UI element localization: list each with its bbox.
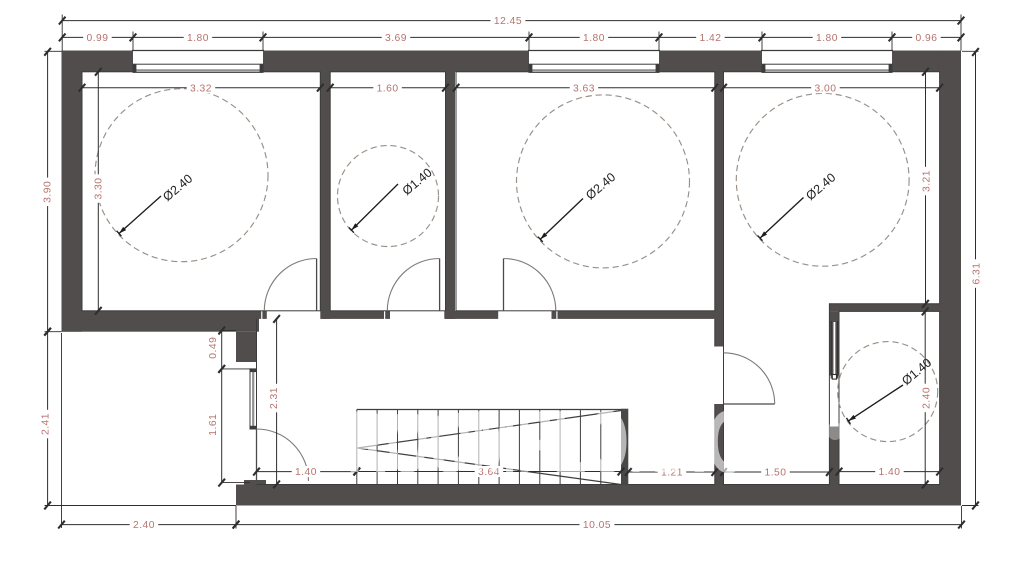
svg-text:2.41: 2.41 [41,413,52,435]
svg-text:0.96: 0.96 [915,33,937,44]
svg-text:10.05: 10.05 [583,520,611,531]
svg-text:2.40: 2.40 [922,387,933,409]
svg-text:ROOMPLONNO: ROOMPLONNO [347,393,750,492]
svg-text:1.50: 1.50 [764,468,786,479]
svg-text:1.80: 1.80 [187,33,209,44]
svg-text:0.49: 0.49 [208,337,219,359]
svg-text:3.90: 3.90 [42,181,53,203]
svg-text:1.60: 1.60 [377,83,399,94]
svg-text:3.69: 3.69 [385,33,407,44]
svg-text:12.45: 12.45 [494,16,522,27]
svg-text:1.40: 1.40 [295,467,317,478]
svg-text:2.40: 2.40 [133,520,155,531]
svg-text:3.32: 3.32 [190,83,212,94]
svg-text:3.30: 3.30 [93,177,104,199]
svg-text:0.99: 0.99 [86,33,108,44]
svg-text:1.42: 1.42 [699,33,721,44]
svg-text:1.80: 1.80 [583,33,605,44]
svg-text:2.31: 2.31 [269,387,280,409]
svg-text:3.00: 3.00 [814,83,836,94]
svg-text:6.31: 6.31 [971,262,982,284]
svg-text:3.21: 3.21 [922,170,933,192]
svg-text:3.63: 3.63 [573,83,595,94]
svg-text:1.80: 1.80 [816,33,838,44]
svg-text:1.40: 1.40 [878,467,900,478]
svg-text:1.61: 1.61 [208,414,219,436]
